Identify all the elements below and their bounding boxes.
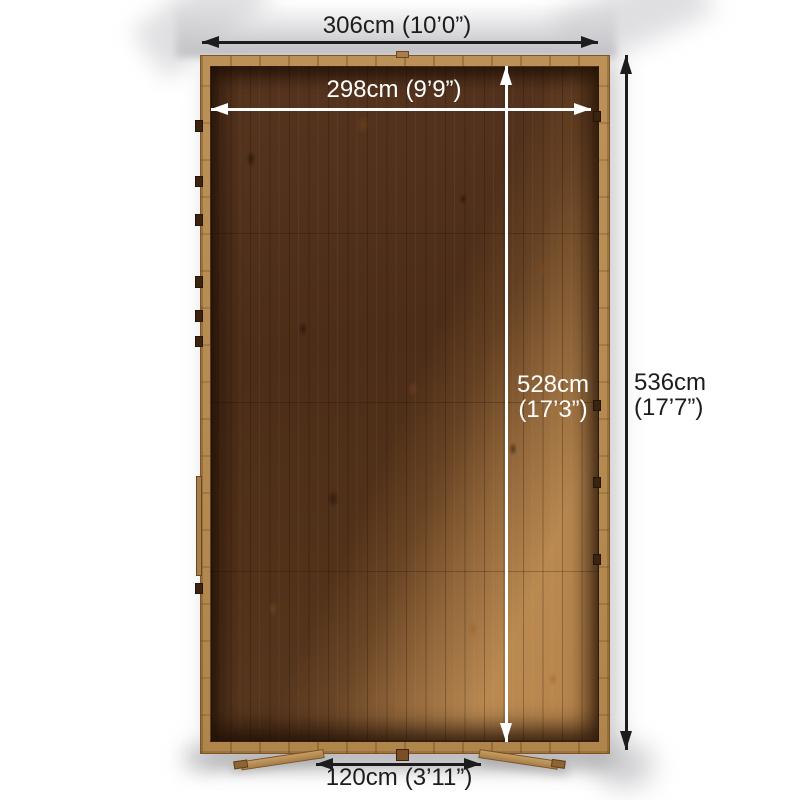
outer-width-label: 306cm(10’0”) bbox=[197, 13, 597, 39]
outer-width-arrow bbox=[202, 41, 598, 44]
frame-joint-lug bbox=[593, 554, 601, 565]
inner-depth-imperial: (17’3”) bbox=[510, 397, 596, 422]
shed-dimension-diagram: 306cm(10’0”) 298cm(9’9”) 528cm (17’3”) 5… bbox=[0, 0, 800, 800]
outer-depth-cm: 536cm bbox=[634, 370, 706, 395]
door-width-imperial: (3’11”) bbox=[405, 764, 473, 791]
outer-width-imperial: (10’0”) bbox=[402, 12, 471, 39]
inner-depth-arrow bbox=[505, 66, 508, 742]
frame-joint-lug bbox=[195, 214, 203, 226]
inner-depth-cm: 528cm bbox=[510, 372, 596, 397]
frame-joint-lug bbox=[195, 276, 203, 288]
outer-width-cm: 306cm bbox=[323, 12, 395, 39]
outer-depth-arrow bbox=[625, 55, 628, 750]
door-width-cm: 120cm bbox=[326, 764, 398, 791]
inner-width-cm: 298cm bbox=[326, 76, 398, 103]
frame-joint-lug bbox=[195, 310, 203, 322]
frame-joint-lug bbox=[195, 120, 203, 132]
inner-width-label: 298cm(9’9”) bbox=[194, 77, 594, 103]
outer-depth-label: 536cm (17’7”) bbox=[634, 370, 706, 420]
door-center-stop bbox=[396, 749, 409, 761]
frame-trim-strip bbox=[196, 476, 202, 576]
inner-width-arrow bbox=[211, 108, 591, 111]
inner-width-imperial: (9’9”) bbox=[406, 76, 462, 103]
frame-joint-lug bbox=[593, 477, 601, 488]
frame-joint-lug bbox=[593, 111, 601, 122]
inner-depth-label: 528cm (17’3”) bbox=[510, 372, 596, 422]
frame-joint-lug bbox=[195, 336, 203, 347]
frame-joint-lug bbox=[195, 583, 203, 594]
frame-joint-lug bbox=[195, 176, 203, 187]
outer-depth-imperial: (17’7”) bbox=[634, 395, 706, 420]
frame-joint-tab bbox=[396, 51, 409, 58]
door-width-label: 120cm(3’11”) bbox=[299, 765, 499, 791]
